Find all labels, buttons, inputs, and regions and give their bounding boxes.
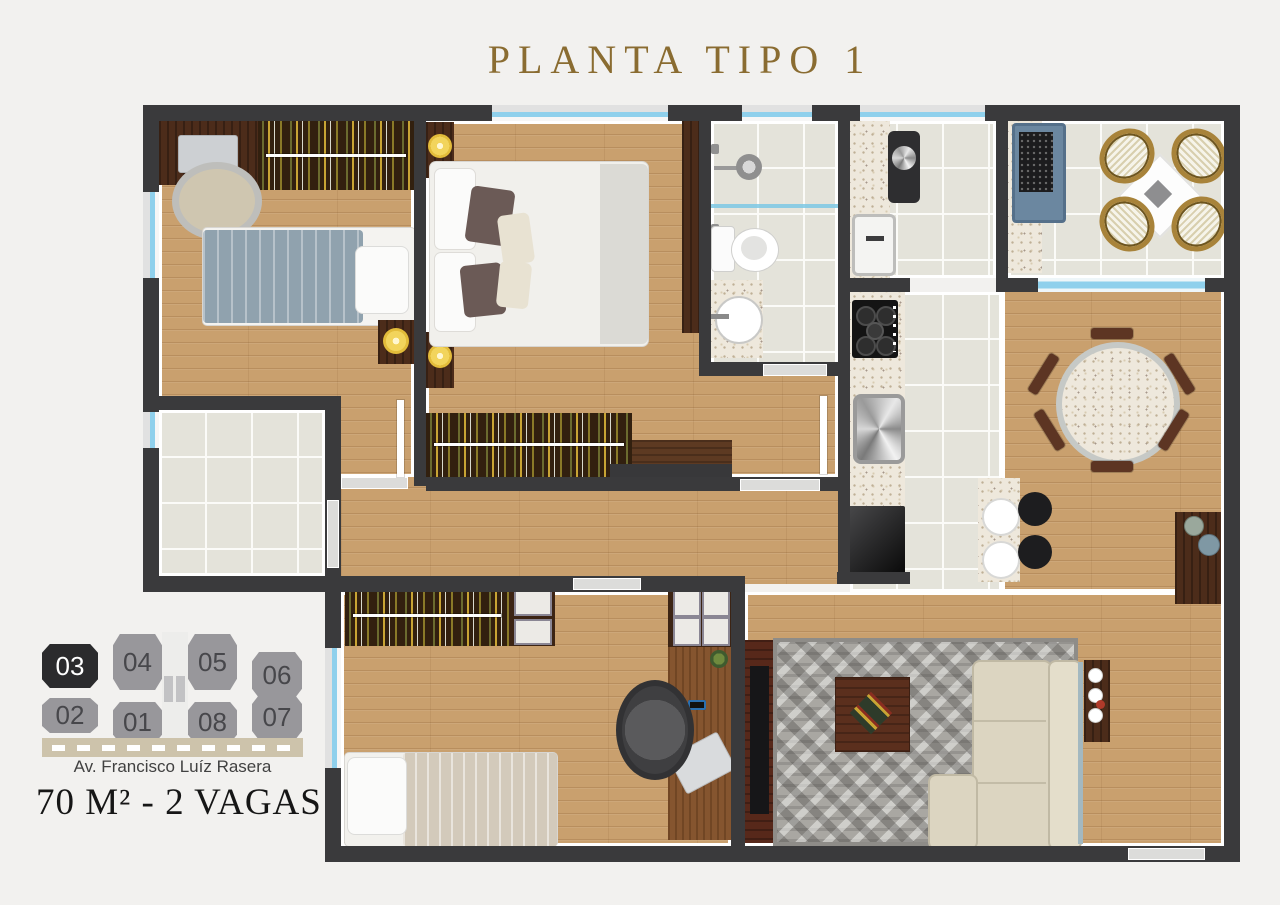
window: [860, 105, 985, 121]
pillow: [497, 212, 536, 266]
window: [325, 648, 341, 768]
pillow: [355, 246, 409, 314]
area-and-parking-label: 70 M² - 2 VAGAS: [36, 781, 336, 824]
duvet-fold: [600, 164, 648, 344]
street-name: Av. Francisco Luíz Rasera: [40, 757, 305, 777]
sink: [715, 296, 763, 344]
washer-drum: [892, 146, 916, 170]
clothes-rail: [434, 443, 624, 446]
unit-number: 06: [263, 660, 292, 691]
door-opening: [573, 578, 641, 590]
keyplan-unit-08: 08: [188, 702, 237, 743]
plate: [982, 498, 1020, 536]
wall-terrace-south-left: [1008, 278, 1038, 292]
pillow: [347, 757, 407, 835]
elevator: [176, 676, 185, 702]
wall-left: [143, 105, 159, 592]
toilet-bowl: [741, 236, 767, 260]
storage-box: [673, 588, 701, 617]
kitchen-sink: [853, 394, 905, 464]
wall-bathroom2-bottom: [143, 576, 341, 592]
phone: [688, 700, 706, 710]
cushion-divider: [974, 782, 1046, 784]
wardrobe: [426, 413, 632, 477]
elevator: [164, 676, 173, 702]
cushion-divider: [974, 720, 1046, 722]
keyplan-unit-04: 04: [113, 634, 162, 690]
wall-laundry-terrace: [996, 121, 1008, 292]
storage-box: [514, 590, 552, 616]
keyplan-unit-01: 01: [113, 702, 162, 743]
unit-number: 02: [56, 700, 85, 731]
table-lamp: [428, 344, 452, 368]
wardrobe: [258, 121, 414, 190]
wall-bottom: [325, 846, 1240, 862]
window: [143, 412, 159, 448]
faucet: [866, 236, 884, 241]
sofa-seats: [972, 660, 1052, 850]
clothes-rail: [353, 614, 501, 617]
storage-box: [702, 617, 730, 646]
burner: [866, 322, 884, 340]
keyplan: 03 04 05 06 02 01 08 07: [40, 632, 305, 757]
floor-plan-page: PLANTA TIPO 1: [0, 0, 1280, 905]
pillow: [496, 260, 533, 309]
wall-bedroom1-master: [414, 105, 426, 486]
bar-stool: [1018, 535, 1052, 569]
cooktop-knobs: [893, 306, 896, 352]
dining-chair: [1091, 328, 1133, 339]
duvet: [203, 230, 363, 323]
unit-number: 03: [56, 651, 85, 682]
plate: [982, 541, 1020, 579]
wardrobe: [345, 585, 509, 646]
floor-bathroom-2: [159, 410, 325, 576]
door-opening: [341, 477, 408, 489]
keyplan-unit-06: 06: [252, 652, 302, 698]
vase: [1184, 516, 1204, 536]
door-leaf: [820, 396, 827, 474]
window: [492, 105, 668, 121]
door-opening: [763, 364, 827, 376]
shower-knob: [711, 144, 719, 154]
street-dashes: [52, 745, 293, 751]
page-title: PLANTA TIPO 1: [0, 36, 1280, 83]
clothes-rail: [266, 154, 406, 157]
wall-kitchen-south: [837, 572, 910, 584]
terrace-glass-door: [1038, 278, 1205, 292]
door-opening: [327, 500, 339, 568]
keyplan-unit-07: 07: [252, 695, 302, 740]
unit-number: 05: [198, 647, 227, 678]
bowl: [1088, 668, 1103, 683]
wall-terrace-south-right: [1205, 278, 1224, 292]
refrigerator: [845, 506, 905, 578]
sofa-trim: [1078, 662, 1083, 844]
bowl: [1088, 708, 1103, 723]
storage-box: [673, 617, 701, 646]
street-strip: [42, 738, 303, 757]
office-chair: [616, 680, 694, 780]
shower-glass: [711, 204, 838, 208]
wall-top: [143, 105, 1240, 121]
sofa-back: [1048, 660, 1082, 850]
plant: [710, 650, 728, 668]
sofa-chaise: [928, 774, 978, 850]
unit-number: 04: [123, 647, 152, 678]
window: [742, 105, 812, 121]
grill-grate: [1019, 132, 1053, 192]
vase: [1198, 534, 1220, 556]
door-opening: [740, 479, 820, 491]
faucet: [711, 314, 729, 319]
unit-number: 07: [263, 702, 292, 733]
keyplan-unit-03: 03: [42, 644, 98, 688]
decor-item: [1096, 700, 1105, 709]
door-leaf: [397, 400, 404, 477]
wall-right: [1224, 105, 1240, 862]
table-lamp: [428, 134, 452, 158]
tv: [750, 666, 769, 814]
entry-door-opening: [1128, 848, 1205, 860]
keyplan-unit-02: 02: [42, 698, 98, 733]
unit-number: 08: [198, 707, 227, 738]
wall-bedroom3-top: [341, 576, 731, 592]
wall-bedroom3-east: [731, 576, 745, 862]
window: [143, 192, 159, 278]
shower-head: [736, 154, 762, 180]
wall-bedroom1-bathroom2: [143, 396, 341, 410]
duvet: [403, 753, 557, 846]
keyplan-unit-05: 05: [188, 634, 237, 690]
storage-box: [702, 588, 730, 617]
laundry-sink: [852, 214, 896, 276]
wall-master-ensuite: [699, 121, 711, 368]
tall-cabinet: [682, 121, 699, 333]
wall-laundry-south: [838, 278, 910, 292]
storage-box: [514, 619, 552, 645]
wall-kitchen-west: [838, 121, 850, 584]
table-lamp: [383, 328, 409, 354]
unit-number: 01: [123, 707, 152, 738]
bar-stool: [1018, 492, 1052, 526]
dining-chair: [1091, 461, 1133, 472]
